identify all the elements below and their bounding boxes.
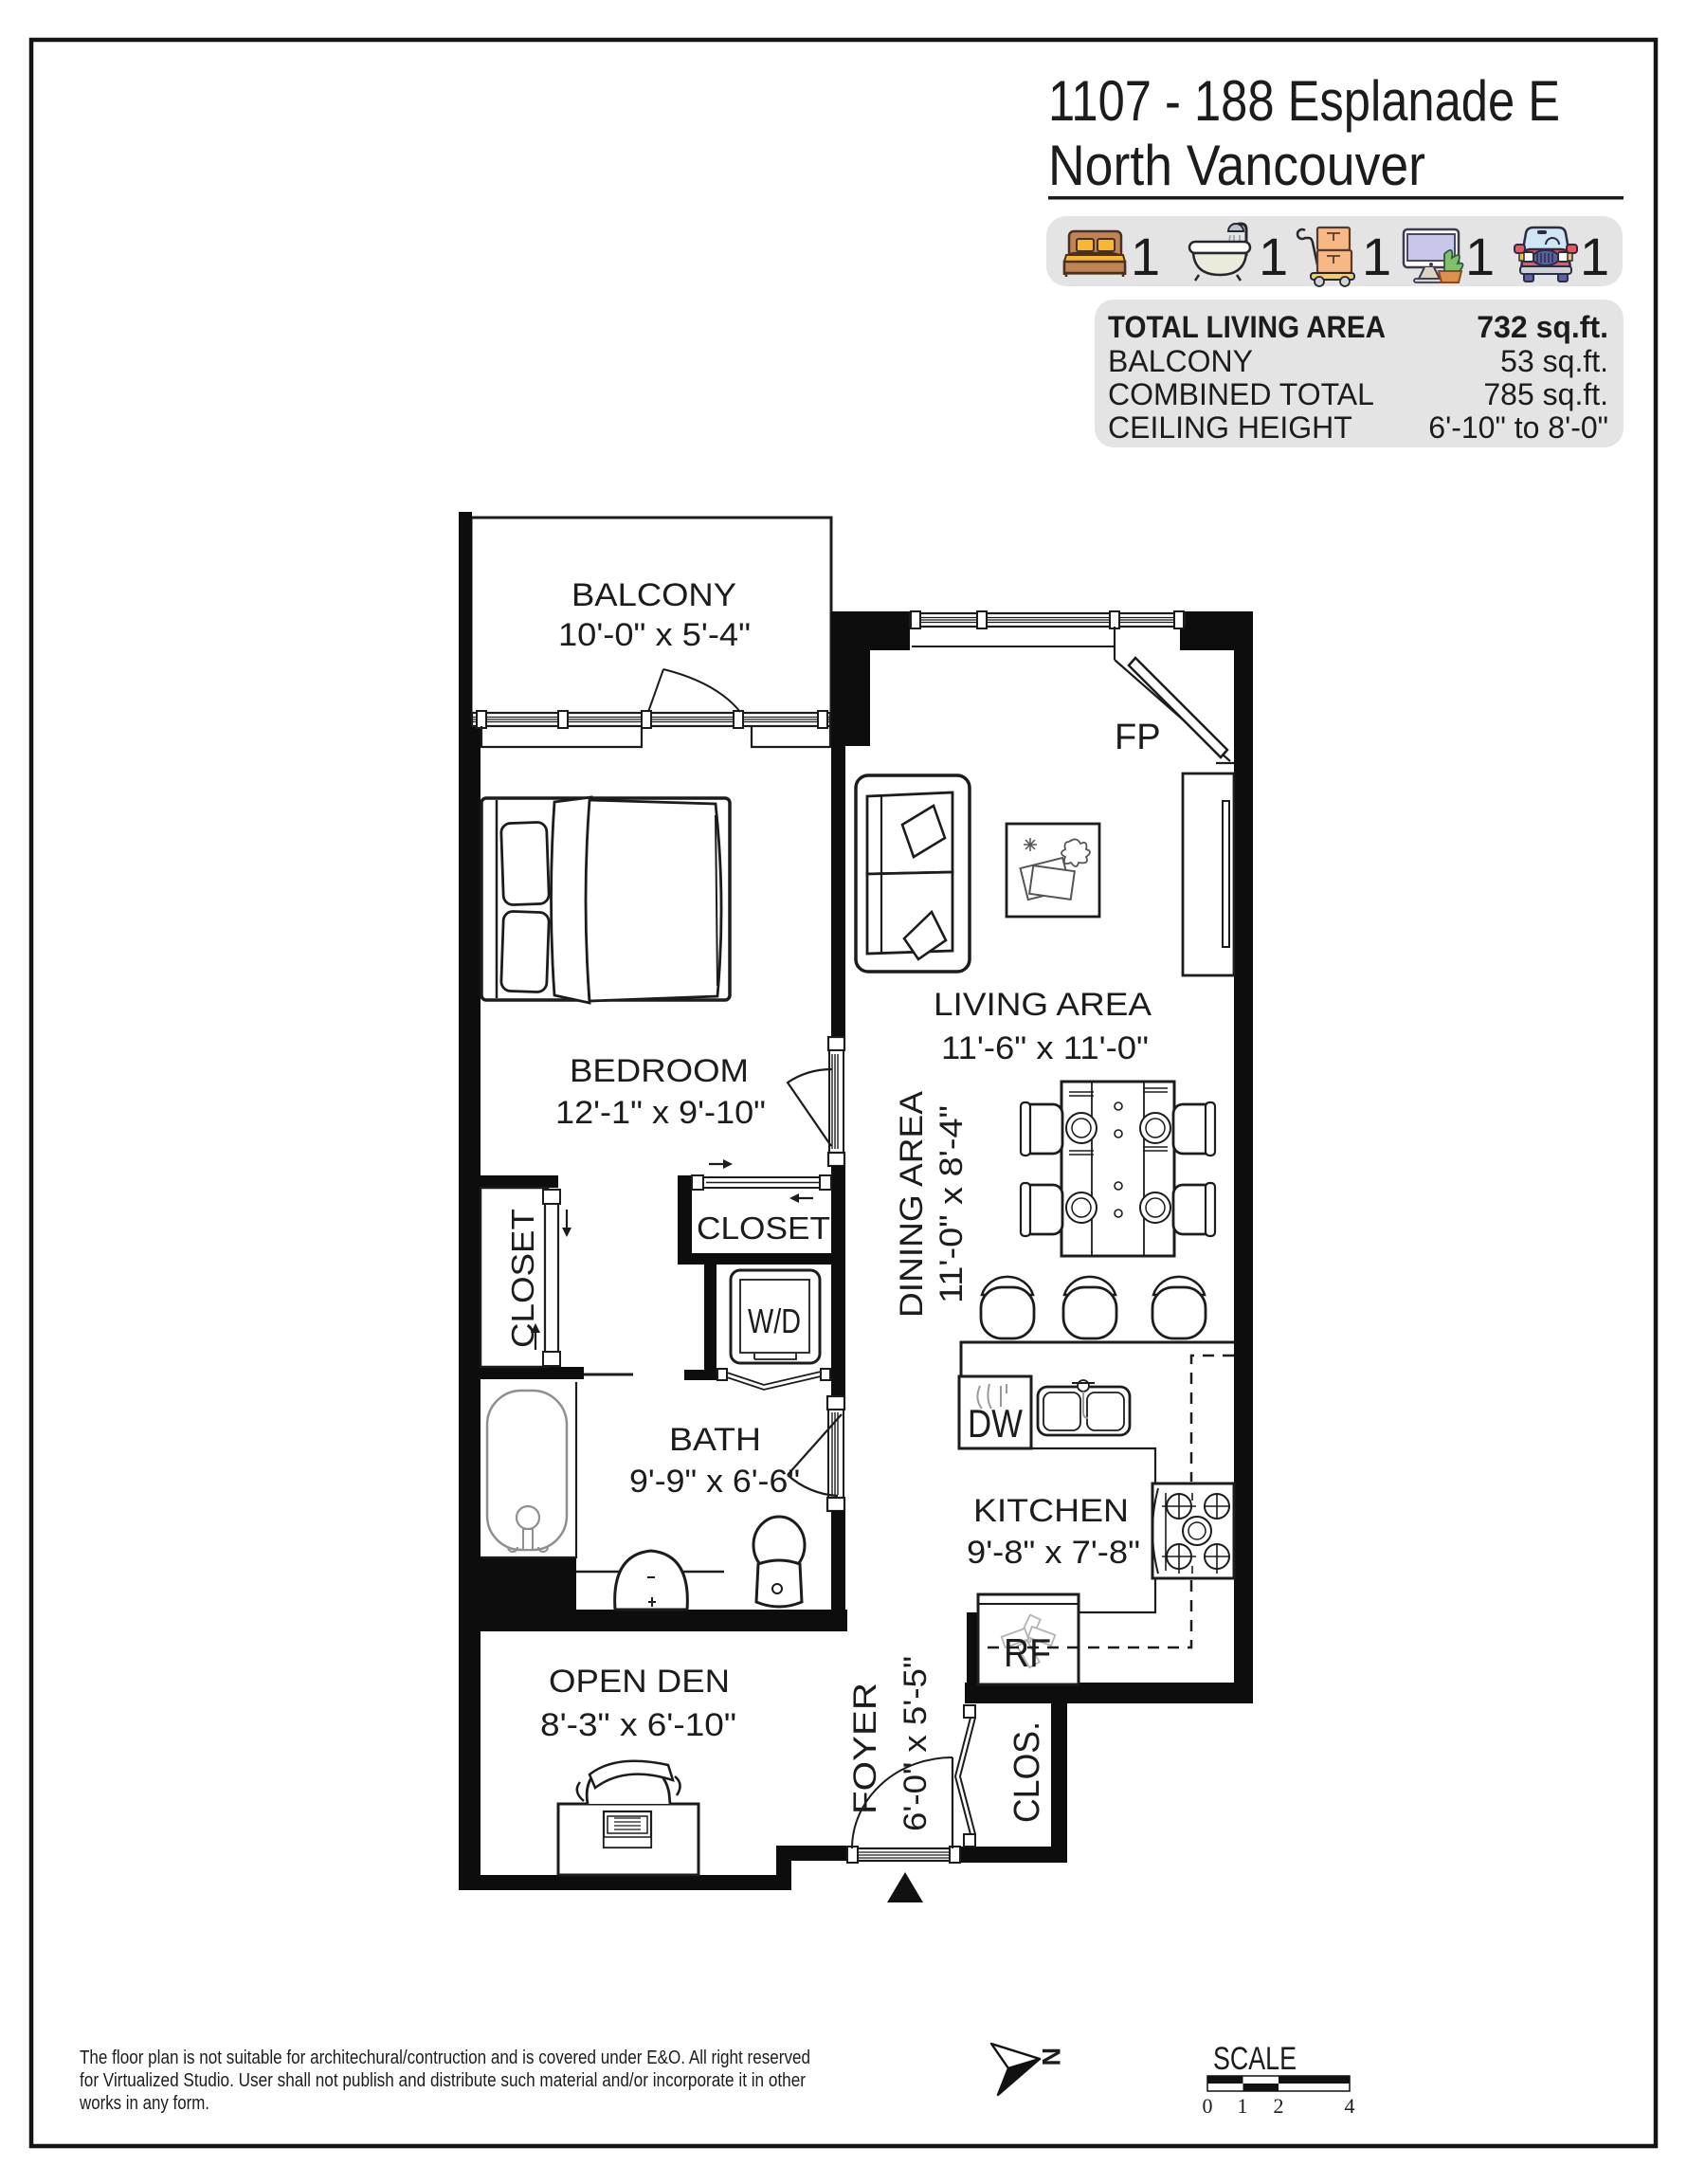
- svg-text:2: 2: [1274, 2094, 1284, 2118]
- svg-text:12'-1" x 9'-10": 12'-1" x 9'-10": [555, 1095, 766, 1131]
- svg-text:FP: FP: [1115, 718, 1161, 757]
- svg-text:The floor plan is not suitable: The floor plan is not suitable for archi…: [80, 2047, 810, 2068]
- svg-text:9'-9" x 6'-6": 9'-9" x 6'-6": [629, 1464, 800, 1500]
- svg-text:1: 1: [1238, 2094, 1248, 2118]
- svg-text:1: 1: [1362, 227, 1391, 286]
- svg-text:OPEN DEN: OPEN DEN: [549, 1664, 730, 1700]
- svg-text:CLOS.: CLOS.: [1007, 1721, 1047, 1823]
- svg-text:N: N: [1037, 2047, 1065, 2066]
- svg-text:1: 1: [1131, 227, 1160, 286]
- svg-text:1: 1: [1465, 227, 1495, 286]
- svg-text:732 sq.ft.: 732 sq.ft.: [1477, 310, 1608, 344]
- svg-text:North Vancouver: North Vancouver: [1048, 134, 1425, 197]
- svg-text:4: 4: [1345, 2094, 1355, 2118]
- svg-text:works in any form.: works in any form.: [79, 2093, 209, 2114]
- svg-text:DINING AREA: DINING AREA: [894, 1091, 930, 1318]
- svg-text:COMBINED TOTAL: COMBINED TOTAL: [1108, 377, 1374, 411]
- svg-text:TOTAL LIVING AREA: TOTAL LIVING AREA: [1108, 310, 1386, 344]
- svg-text:53 sq.ft.: 53 sq.ft.: [1500, 344, 1608, 378]
- svg-text:BALCONY: BALCONY: [1108, 344, 1253, 378]
- svg-text:CLOSET: CLOSET: [697, 1210, 830, 1246]
- svg-text:1: 1: [1580, 227, 1609, 286]
- svg-text:9'-8" x 7'-8": 9'-8" x 7'-8": [967, 1535, 1140, 1571]
- svg-text:CEILING HEIGHT: CEILING HEIGHT: [1108, 410, 1352, 445]
- svg-text:1107 - 188 Esplanade E: 1107 - 188 Esplanade E: [1048, 69, 1560, 133]
- svg-text:785 sq.ft.: 785 sq.ft.: [1483, 377, 1608, 411]
- svg-text:CLOSET: CLOSET: [505, 1209, 540, 1348]
- svg-text:0: 0: [1203, 2094, 1213, 2118]
- svg-text:1: 1: [1259, 227, 1288, 286]
- svg-text:W/D: W/D: [748, 1301, 801, 1340]
- svg-text:for Virtualized Studio. User s: for Virtualized Studio. User shall not p…: [80, 2070, 806, 2091]
- svg-text:FOYER: FOYER: [847, 1683, 883, 1814]
- svg-text:10'-0" x 5'-4": 10'-0" x 5'-4": [558, 617, 751, 653]
- svg-text:BALCONY: BALCONY: [571, 577, 736, 613]
- svg-text:6'-0" x 5'-5": 6'-0" x 5'-5": [898, 1656, 934, 1831]
- svg-text:DW: DW: [968, 1401, 1023, 1446]
- svg-text:RF: RF: [1004, 1630, 1051, 1675]
- svg-text:KITCHEN: KITCHEN: [973, 1493, 1129, 1529]
- svg-text:8'-3" x 6'-10": 8'-3" x 6'-10": [540, 1707, 736, 1743]
- svg-text:BEDROOM: BEDROOM: [570, 1053, 749, 1089]
- svg-text:11'-6" x 11'-0": 11'-6" x 11'-0": [941, 1030, 1149, 1066]
- svg-text:6'-10" to 8'-0": 6'-10" to 8'-0": [1428, 410, 1608, 445]
- svg-text:SCALE: SCALE: [1213, 2041, 1297, 2077]
- svg-text:11'-0" x 8'-4": 11'-0" x 8'-4": [934, 1105, 970, 1303]
- svg-text:BATH: BATH: [669, 1422, 761, 1458]
- svg-text:LIVING AREA: LIVING AREA: [934, 987, 1152, 1023]
